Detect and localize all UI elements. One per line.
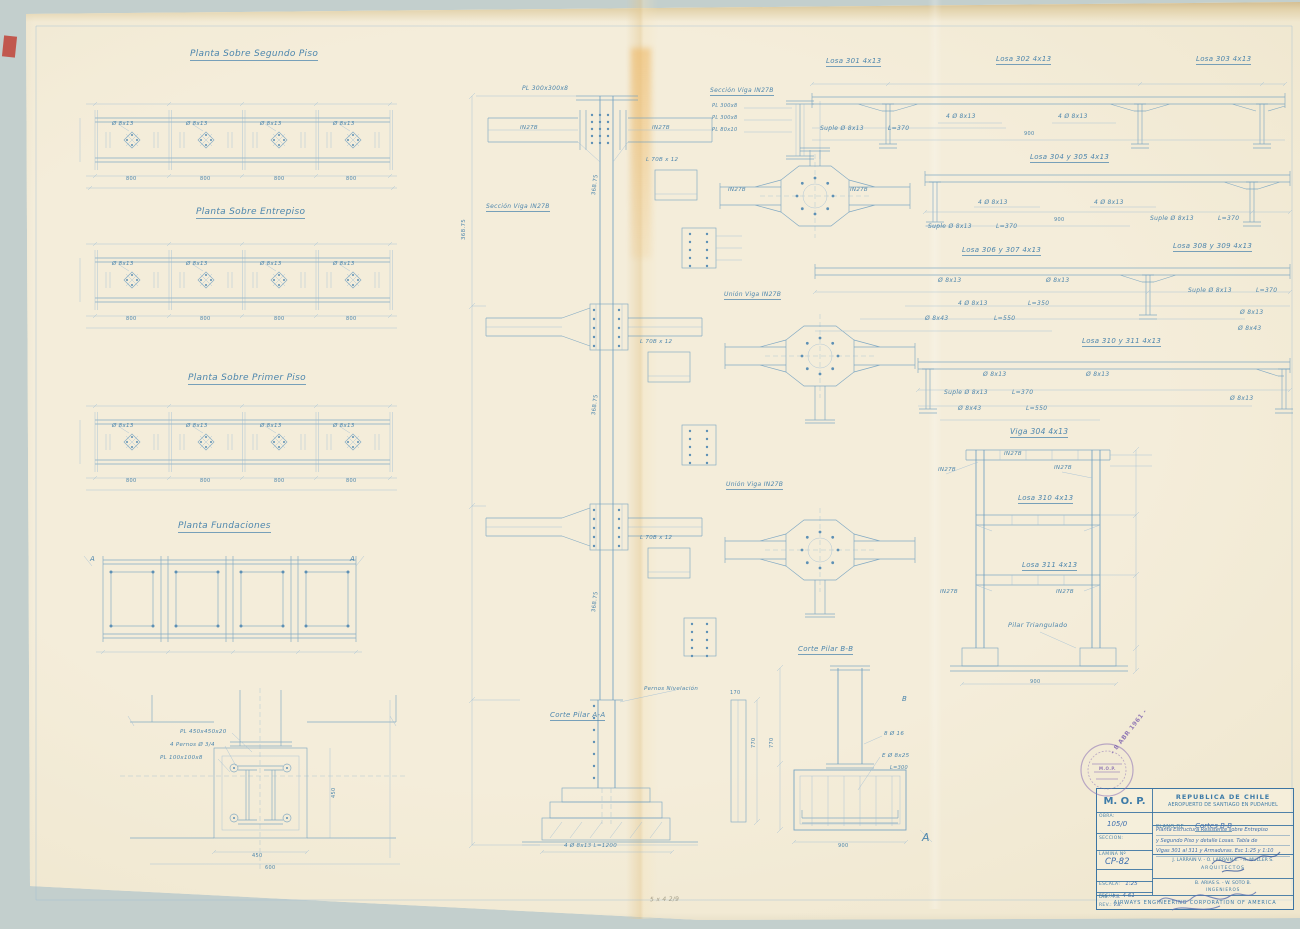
red-edge-mark bbox=[2, 35, 17, 57]
signature-architects bbox=[1212, 852, 1280, 872]
blueprint-sheet: Planta Sobre Segundo Piso Planta Sobre E… bbox=[0, 0, 1300, 929]
stamp-and-signatures bbox=[0, 0, 1300, 929]
signature-airways bbox=[1158, 892, 1256, 910]
pencil-note: 5 x 4 2/9 bbox=[650, 897, 679, 904]
stamp-org: M.O.P. bbox=[1099, 767, 1116, 771]
